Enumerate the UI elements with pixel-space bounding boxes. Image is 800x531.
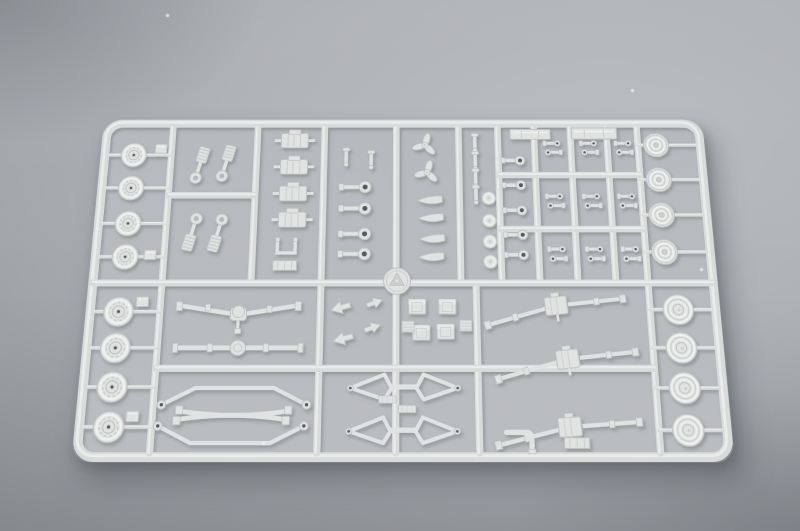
- emblem-part: [383, 268, 410, 294]
- box-sm-part: [460, 320, 472, 331]
- disc-part: [482, 192, 496, 205]
- plate-sm-part: [564, 438, 590, 449]
- plate-top-part: [510, 129, 551, 139]
- plate-sm-part: [272, 261, 296, 271]
- plate-sm-part: [379, 396, 396, 403]
- box-sm-part: [402, 321, 414, 332]
- box-big-part: [439, 299, 456, 314]
- tab-part: [144, 250, 157, 260]
- box-big-part: [413, 325, 430, 340]
- dust-speck: [262, 442, 265, 445]
- dust-speck: [631, 89, 634, 92]
- disc-part: [482, 214, 496, 227]
- dust-speck: [166, 14, 169, 17]
- tab-part: [136, 297, 149, 307]
- dust-speck: [700, 268, 703, 271]
- disc-part: [483, 255, 497, 269]
- sprue-svg: [71, 119, 736, 462]
- sprue-frame: [71, 119, 736, 462]
- box-big-part: [409, 299, 426, 314]
- photo-background: [0, 0, 800, 531]
- plate-sm-part: [398, 405, 415, 412]
- box-big-part: [437, 324, 454, 339]
- plate-top-part: [571, 128, 617, 139]
- tab-part: [126, 411, 139, 422]
- tab-part: [155, 144, 167, 153]
- disc-part: [483, 235, 497, 248]
